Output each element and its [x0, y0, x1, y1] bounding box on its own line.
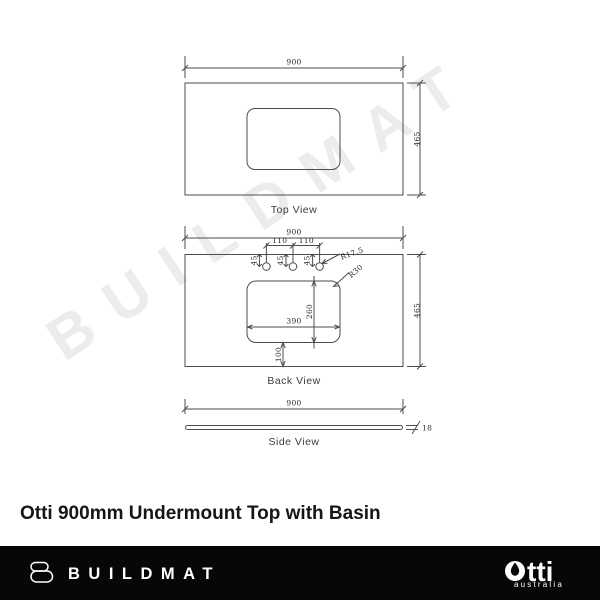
top-view-outline [185, 83, 403, 195]
back-view-label: Back View [267, 375, 320, 387]
tap-offset-3-label: 45 [303, 255, 312, 265]
cutout-width-dimension [247, 325, 340, 329]
technical-drawing: 900 465 Top View 900 [0, 0, 600, 470]
tap-spacing-dimension [263, 243, 322, 263]
product-title: Otti 900mm Undermount Top with Basin [20, 503, 381, 525]
buildmat-icon [28, 559, 58, 587]
thickness-dimension [406, 421, 420, 434]
footer-bar: BUILDMAT tti australia [0, 546, 600, 600]
buildmat-logo: BUILDMAT [28, 559, 221, 587]
otti-wordmark-tail: tti [527, 558, 553, 582]
cutout-bottom-label: 100 [274, 347, 283, 362]
side-view-slab [186, 426, 403, 430]
top-view: 900 465 Top View [182, 56, 426, 216]
tap-gap-right-label: 110 [299, 236, 314, 245]
otti-logo: tti australia [504, 558, 574, 589]
tap-hole-center [289, 263, 297, 271]
tap-radius-label: R17.5 [339, 245, 364, 261]
otti-tagline: australia [514, 580, 564, 589]
back-view-depth-label: 465 [413, 303, 422, 318]
corner-radius-label: R30 [347, 262, 365, 279]
thickness-label: 18 [422, 424, 432, 433]
back-view-outline [185, 255, 403, 367]
otti-wordmark-icon: tti [504, 558, 574, 582]
corner-radius-leader [334, 273, 350, 287]
side-view-width-label: 900 [286, 399, 301, 408]
top-view-label: Top View [271, 204, 317, 216]
tap-radius-leader [322, 254, 340, 264]
back-view: 900 110 110 45 [182, 226, 426, 387]
back-view-basin-cutout [247, 281, 340, 343]
cutout-width-label: 390 [286, 317, 301, 326]
top-view-width-label: 900 [286, 58, 301, 67]
tap-offset-1-label: 45 [250, 255, 259, 265]
top-view-depth-label: 465 [413, 131, 422, 146]
tap-offset-2-label: 45 [276, 255, 285, 265]
side-view-label: Side View [268, 436, 319, 448]
tap-gap-left-label: 110 [272, 236, 287, 245]
top-view-basin-cutout [247, 109, 340, 170]
buildmat-wordmark: BUILDMAT [68, 565, 221, 584]
cutout-height-label: 260 [305, 304, 314, 319]
side-view: 900 18 Side View [182, 399, 432, 449]
tap-hole-left [263, 263, 271, 271]
